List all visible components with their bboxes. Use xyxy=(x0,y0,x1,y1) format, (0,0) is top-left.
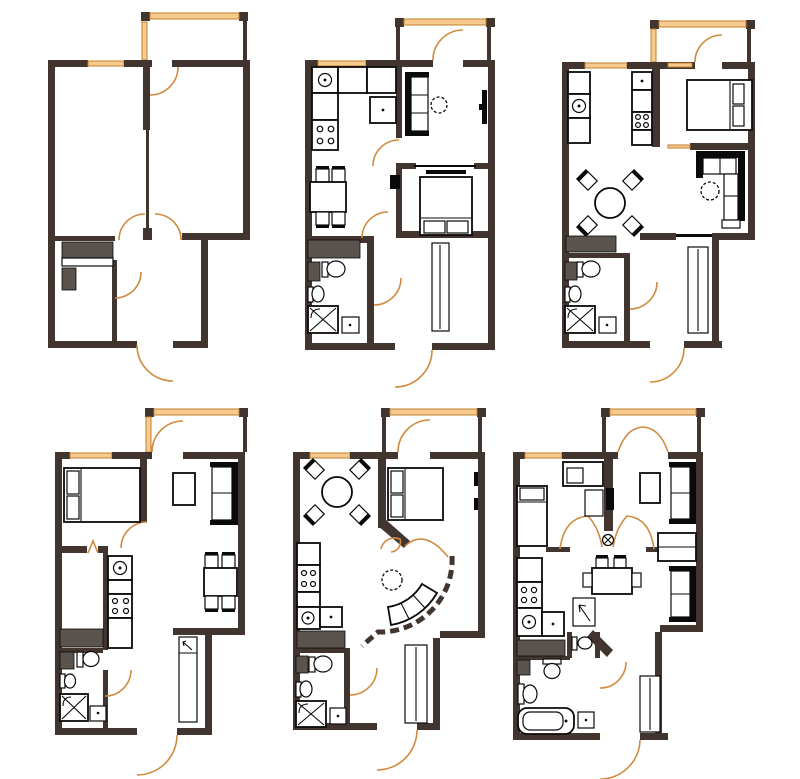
corner-shower xyxy=(308,306,338,333)
washbasin xyxy=(518,684,537,704)
plan-5-balcony xyxy=(381,408,486,452)
plan-4-living xyxy=(173,462,238,612)
dining-table xyxy=(204,568,237,596)
plan-5-dining xyxy=(303,458,371,526)
plan-3-hallway xyxy=(688,247,708,333)
plan-1-balcony xyxy=(141,12,248,60)
round-dining-table xyxy=(595,188,625,218)
plan-4-bathroom xyxy=(60,652,106,722)
curved-sofa xyxy=(388,584,437,625)
floor-plan-6: plan-6-bottom-right xyxy=(513,408,705,779)
wc-toilet xyxy=(572,637,592,650)
plan-3-dining xyxy=(576,169,644,237)
plan-2-balcony xyxy=(395,18,495,60)
wardrobe xyxy=(179,637,197,722)
plan-5-bedroom xyxy=(388,468,478,520)
round-side-table xyxy=(382,570,402,590)
bathtub xyxy=(518,708,574,734)
plan-1-walls xyxy=(48,60,250,348)
plan-2-living xyxy=(405,72,487,136)
round-side-table xyxy=(701,182,719,200)
plan-3-bedroom xyxy=(687,80,752,130)
plan-3-balcony xyxy=(650,20,755,62)
dining-table xyxy=(310,182,346,212)
floor-plan-1: plan-1-top-left xyxy=(48,12,250,381)
floor-plan-collage: plan-1-top-left xyxy=(0,0,800,779)
plan-2-dining xyxy=(310,166,346,228)
plan-3-kitchen xyxy=(568,72,652,145)
plan-3-living xyxy=(696,151,745,228)
sofa xyxy=(405,72,429,136)
wardrobe-cabinet xyxy=(62,242,113,258)
tv xyxy=(482,90,487,124)
plan-4-bedroom xyxy=(64,468,140,522)
plan-6-living xyxy=(640,462,696,622)
plan-4-kitchen xyxy=(60,556,132,648)
side-table xyxy=(640,473,660,503)
cabinet xyxy=(60,629,103,647)
plan-5-living xyxy=(382,570,437,625)
plan-5-kitchen xyxy=(297,543,345,648)
corner-sofa xyxy=(696,151,745,228)
cabinet xyxy=(517,640,565,656)
floor-plan-5: plan-5-bottom-middle xyxy=(293,408,486,770)
stove xyxy=(632,112,652,130)
washbasin xyxy=(308,286,324,302)
plan-6-bedroom xyxy=(517,462,603,546)
washbasin xyxy=(60,674,76,688)
plan-2-bathroom xyxy=(308,240,360,333)
plan-2-bedroom xyxy=(390,170,472,235)
dining-set xyxy=(204,552,237,612)
washbasin xyxy=(565,286,581,302)
plan-2-kitchen xyxy=(312,67,396,150)
sofa xyxy=(210,462,238,525)
shelf xyxy=(585,490,603,516)
corner-shower xyxy=(60,694,88,721)
low-cabinet xyxy=(62,268,76,290)
plan-5-hallway xyxy=(405,645,427,723)
cabinet xyxy=(297,631,345,648)
toilet xyxy=(322,261,345,277)
toilet xyxy=(309,656,332,672)
washbasin xyxy=(296,681,312,697)
tv xyxy=(474,472,478,486)
toilet xyxy=(577,261,600,277)
second-sofa xyxy=(669,566,696,622)
corner-shower xyxy=(296,701,326,727)
stove xyxy=(312,120,338,150)
dining-table xyxy=(592,568,632,594)
plan-5-bathroom xyxy=(296,656,346,727)
round-side-table xyxy=(431,97,447,113)
stove xyxy=(297,565,320,592)
corner-shower xyxy=(565,306,595,333)
stove xyxy=(108,594,132,618)
plan-4-hallway xyxy=(179,637,197,722)
toilet xyxy=(77,652,99,668)
toilet xyxy=(543,659,561,679)
plan-1-furniture xyxy=(62,242,113,290)
round-dining-table xyxy=(322,477,352,507)
plan-2-hallway xyxy=(432,243,449,331)
cabinet xyxy=(566,236,616,252)
plan-6-kitchen xyxy=(517,558,565,656)
floor-plan-4: plan-4-bottom-left xyxy=(55,408,248,775)
plan-6-hallway xyxy=(640,676,660,732)
coffee-table xyxy=(173,473,195,505)
floor-plan-2: plan-2-top-middle xyxy=(305,18,495,387)
plan-6-dining xyxy=(573,555,641,626)
plan-3-bathroom xyxy=(565,236,616,333)
stove xyxy=(517,582,542,608)
cabinet xyxy=(308,240,360,258)
sofa xyxy=(669,462,696,524)
floor-plan-3: plan-3-top-right xyxy=(562,20,755,382)
floor-plan-svg: plan-1-top-left xyxy=(0,0,800,779)
